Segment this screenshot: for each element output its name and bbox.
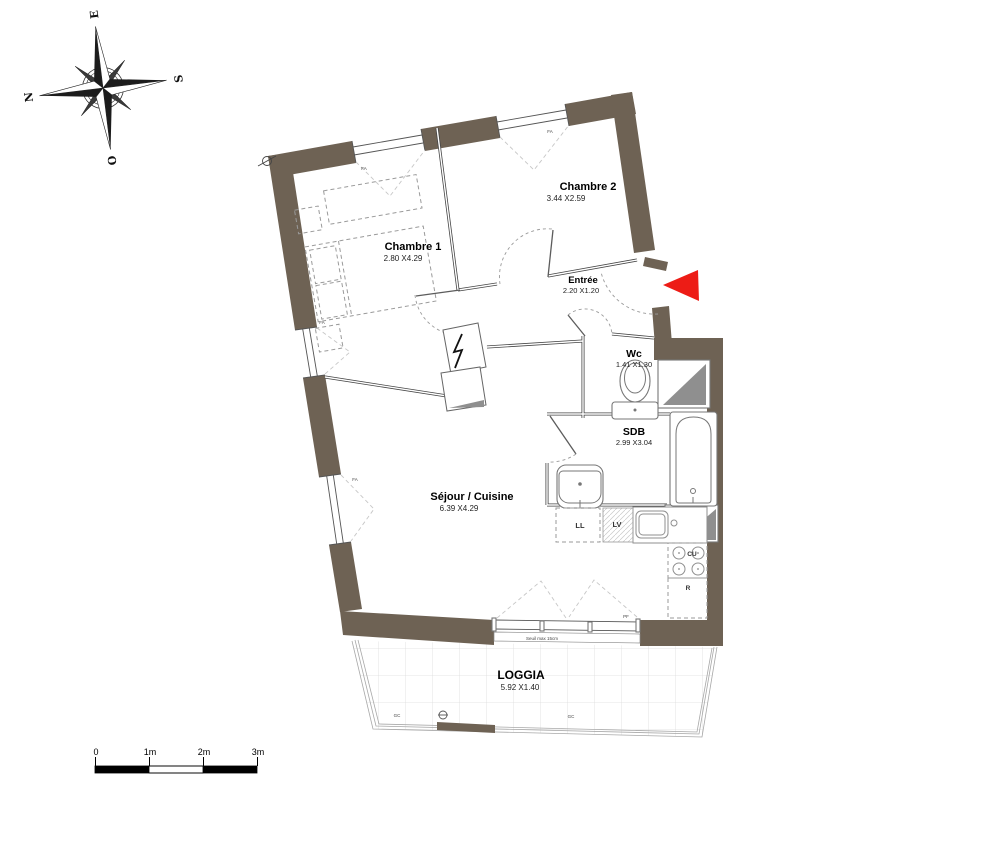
scale-tick-0: 0 <box>93 747 98 757</box>
wall-right-chambre2 <box>611 92 655 253</box>
kitchen-counter: LL LV <box>556 507 707 543</box>
compass-main-points <box>32 19 174 158</box>
nightstand <box>315 324 343 352</box>
wall-left-1 <box>268 153 317 330</box>
window-chambre1-top: FA <box>352 129 425 196</box>
scale-tick-3m: 3m <box>252 747 265 757</box>
duct-box <box>441 367 486 411</box>
electrical-panel <box>443 323 486 374</box>
pf-mullion <box>540 621 544 631</box>
sdb-dims: 2.99 X3.04 <box>616 438 652 447</box>
chambre2-dims: 3.44 X2.59 <box>547 194 586 203</box>
wc-door <box>568 309 612 336</box>
sdb-door <box>548 416 576 462</box>
compass-n: N <box>22 91 36 103</box>
window-pf-loggia: Seuil max 15cm PF <box>492 580 640 643</box>
entree-name: Entrée <box>568 275 598 286</box>
sdb-sink <box>557 465 603 508</box>
wall-left-2 <box>303 375 341 477</box>
wardrobe <box>324 175 422 225</box>
washing-machine-label: LL <box>575 521 585 530</box>
pillow <box>310 246 342 284</box>
window-chambre1-left: FA <box>295 320 350 378</box>
chambre2-name: Chambre 2 <box>560 181 617 193</box>
entrance-door-leaf <box>643 257 668 271</box>
fridge: R <box>668 578 707 618</box>
guardrail-label: GC <box>394 713 402 718</box>
compass-o: O <box>105 154 119 166</box>
chambre1-name: Chambre 1 <box>385 241 442 253</box>
guardrail-label: GC <box>568 714 576 719</box>
pf-mullion <box>588 622 592 632</box>
sejour-name: Séjour / Cuisine <box>430 491 513 503</box>
chambre2-door <box>499 229 553 284</box>
wc-dims: 1.41 X1.30 <box>616 360 652 369</box>
window-chambre2-top: FA <box>496 104 569 170</box>
wall-bottom-right <box>640 620 723 646</box>
scale-tick-2m: 2m <box>198 747 211 757</box>
cooktop: CU <box>668 543 707 578</box>
sejour-dims: 6.39 X4.29 <box>440 504 479 513</box>
compass-s: S <box>172 74 186 84</box>
dishwasher-label: LV <box>612 520 621 529</box>
compass-rose: N E S O <box>13 0 195 175</box>
entree-dims: 2.20 X1.20 <box>563 286 599 295</box>
wall-bottom-left <box>340 611 494 645</box>
wc-name: Wc <box>626 348 642 360</box>
pf-mullion <box>636 619 640 632</box>
window-fa-label: FA <box>547 129 553 134</box>
threshold-note: Seuil max 15cm <box>526 636 558 641</box>
pf-label: PF <box>623 614 629 619</box>
chambre1-dims: 2.80 X4.29 <box>384 254 423 263</box>
window-sejour-left: FA <box>319 474 374 545</box>
interior-walls <box>325 128 670 505</box>
pillow <box>316 281 348 319</box>
wall-left-3 <box>329 542 362 612</box>
floor-plan-drawing: N E S O <box>0 0 1000 857</box>
wall-top-2 <box>421 116 500 151</box>
pf-mullion <box>492 618 496 631</box>
entrance-door <box>601 272 658 314</box>
scale-tick-1m: 1m <box>144 747 157 757</box>
scale-segment-2 <box>149 766 203 773</box>
floor-plan-page: N E S O <box>0 0 1000 857</box>
loggia-dims: 5.92 X1.40 <box>501 683 540 692</box>
window-fa-label: FA <box>352 477 358 482</box>
scale-bar: 0 1m 2m 3m <box>93 747 264 773</box>
cooktop-label: CU <box>687 551 697 558</box>
compass-e: E <box>88 10 102 20</box>
scale-segment-3 <box>203 766 257 773</box>
scale-segment-1 <box>95 766 149 773</box>
pf-threshold <box>494 632 640 643</box>
fridge-label: R <box>686 585 691 592</box>
window-fa-label: FA <box>361 166 367 171</box>
bathtub <box>670 412 717 506</box>
entrance-arrow <box>663 270 699 301</box>
loggia-name: LOGGIA <box>497 668 545 682</box>
sdb-name: SDB <box>623 426 646 438</box>
